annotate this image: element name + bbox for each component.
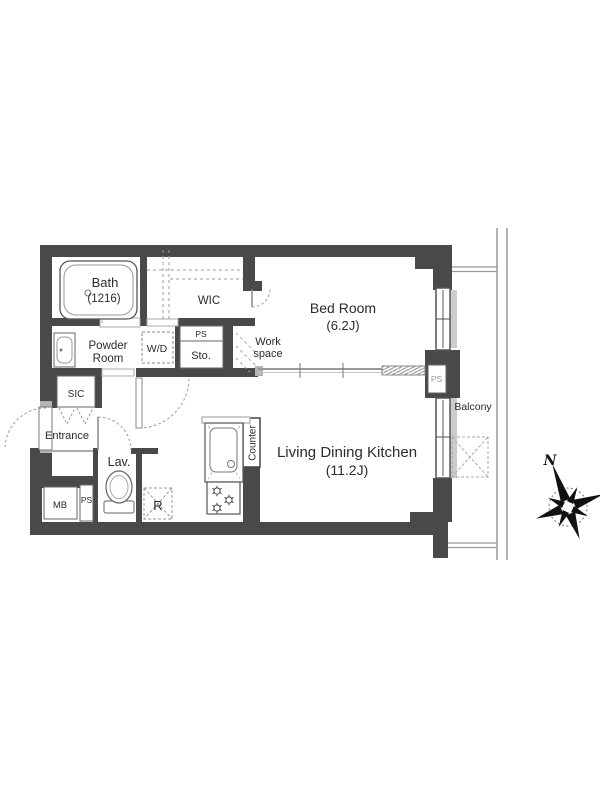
stove-icon	[207, 482, 240, 514]
bathtub-icon	[60, 261, 137, 319]
powder-room-label-1: Powder	[89, 340, 128, 352]
powder-sliding-door	[102, 369, 134, 376]
wic-door-arc	[252, 289, 270, 307]
wic-closet-dashes	[147, 250, 243, 320]
ldk-size-label: (11.2J)	[326, 462, 369, 478]
lavatory-label: Lav.	[108, 455, 131, 469]
ldk-window	[436, 398, 450, 478]
sliding-partition	[258, 363, 425, 378]
bedroom-size-label: (6.2J)	[326, 318, 359, 333]
bedroom-window	[436, 288, 450, 350]
ldk-label: Living Dining Kitchen	[277, 444, 417, 461]
kitchen-lip	[202, 417, 250, 423]
floor-plan-page: N Bath (1216) WIC Bed Room (6.2J) Powder…	[0, 0, 600, 800]
floor-plan-svg: N Bath (1216) WIC Bed Room (6.2J) Powder…	[0, 0, 600, 800]
compass-north-label: N	[543, 453, 558, 469]
hall-door-arc	[139, 378, 189, 428]
meter-box-label: MB	[53, 500, 67, 511]
evacuation-hatch	[452, 437, 488, 477]
wic-label: WIC	[198, 295, 220, 307]
balcony-label: Balcony	[454, 401, 492, 413]
powder-room-label-2: Room	[93, 353, 124, 365]
bath-size-label: (1216)	[87, 293, 120, 305]
sic-door-fold	[77, 408, 93, 424]
sic-door-fold	[59, 408, 75, 424]
wic-sliding-door	[147, 319, 178, 326]
toilet-icon	[104, 471, 134, 513]
bath-label: Bath	[92, 275, 119, 290]
ps-meter-label: PS	[81, 495, 93, 505]
counter-label: Counter	[248, 425, 259, 461]
entrance-door-leaf	[39, 407, 52, 450]
faucet-icon	[228, 461, 235, 468]
bedroom-label: Bed Room	[310, 300, 376, 316]
accordion-section	[382, 366, 425, 375]
kitchen-unit	[202, 417, 250, 514]
ps-storage-label: PS	[195, 329, 207, 339]
lav-door-arc	[98, 417, 131, 450]
storage-label: Sto.	[191, 350, 211, 362]
workspace-label-1: Work	[255, 336, 281, 348]
washer-dryer-label: W/D	[147, 343, 168, 355]
ps-shaft-label: PS	[431, 374, 443, 384]
entrance-label: Entrance	[45, 430, 89, 442]
sic-label: SIC	[68, 389, 85, 400]
compass-rose: N	[520, 451, 600, 551]
workspace-label-2: space	[253, 348, 282, 360]
refrigerator-label: R	[153, 498, 162, 513]
hall-door-leaf	[136, 378, 142, 428]
powder-sink-icon	[54, 333, 75, 367]
